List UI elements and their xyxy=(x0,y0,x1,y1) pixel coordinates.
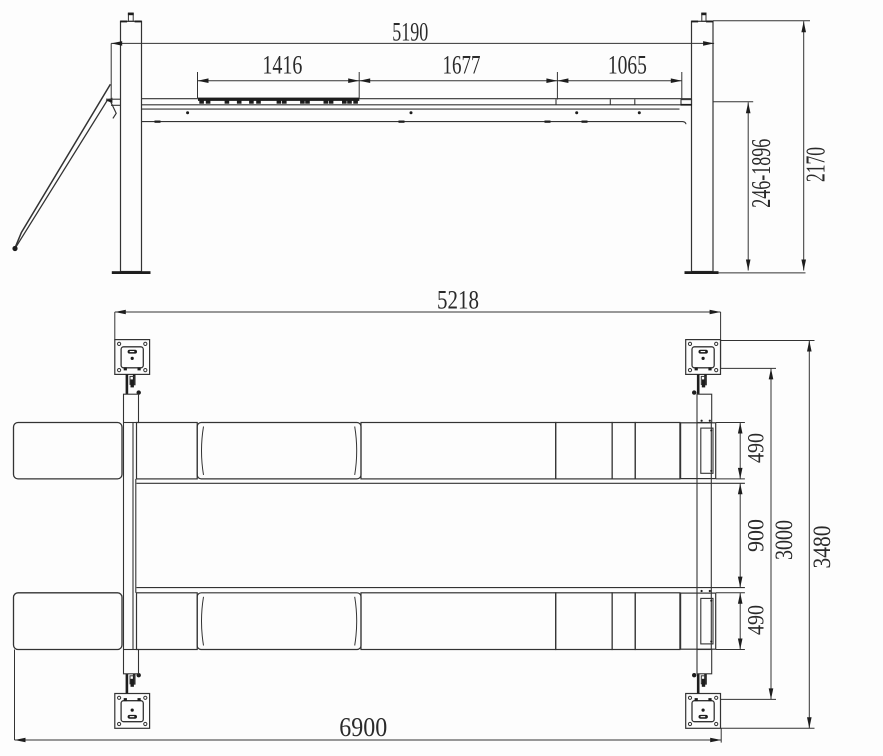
svg-text:490: 490 xyxy=(743,605,768,635)
svg-text:1416: 1416 xyxy=(262,51,302,80)
svg-text:490: 490 xyxy=(743,433,768,463)
svg-text:900: 900 xyxy=(743,519,768,552)
svg-text:246-1896: 246-1896 xyxy=(746,139,776,208)
svg-text:1065: 1065 xyxy=(608,51,647,80)
svg-text:2170: 2170 xyxy=(801,147,831,182)
svg-text:3000: 3000 xyxy=(771,520,798,560)
svg-text:3480: 3480 xyxy=(809,526,836,569)
svg-text:1677: 1677 xyxy=(443,51,481,80)
svg-text:5218: 5218 xyxy=(437,286,479,315)
svg-text:5190: 5190 xyxy=(392,18,428,47)
svg-text:6900: 6900 xyxy=(339,712,387,742)
